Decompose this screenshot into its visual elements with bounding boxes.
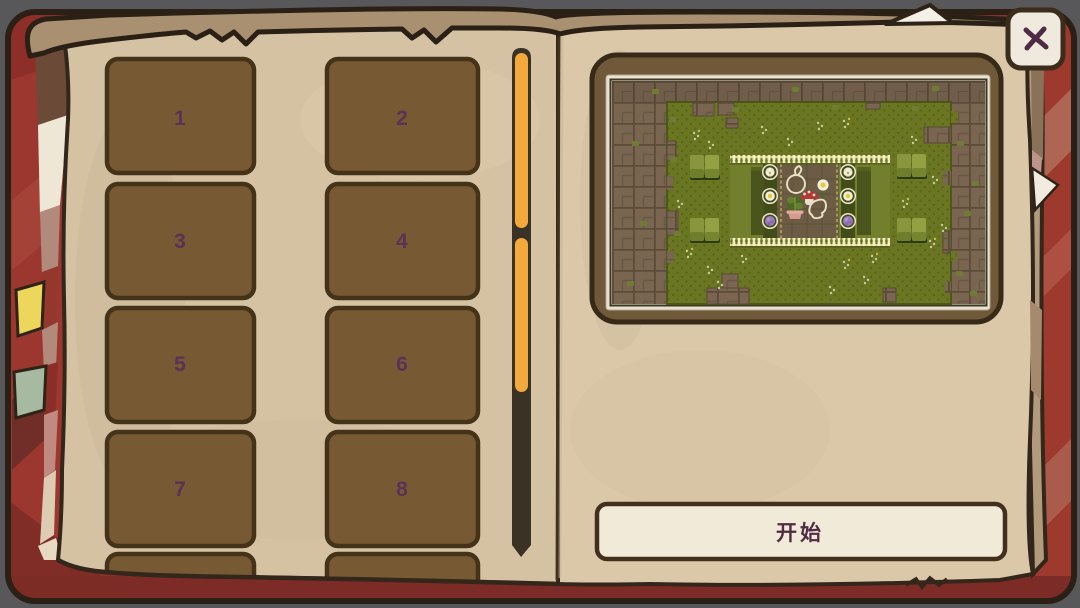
svg-text:4: 4	[396, 230, 408, 253]
svg-text:6: 6	[396, 353, 408, 376]
svg-text:开始: 开始	[776, 521, 824, 545]
svg-text:3: 3	[174, 230, 186, 253]
svg-text:5: 5	[174, 353, 186, 376]
svg-text:8: 8	[396, 478, 408, 501]
svg-text:1: 1	[174, 107, 186, 130]
svg-text:7: 7	[174, 478, 186, 501]
svg-text:2: 2	[396, 107, 408, 130]
